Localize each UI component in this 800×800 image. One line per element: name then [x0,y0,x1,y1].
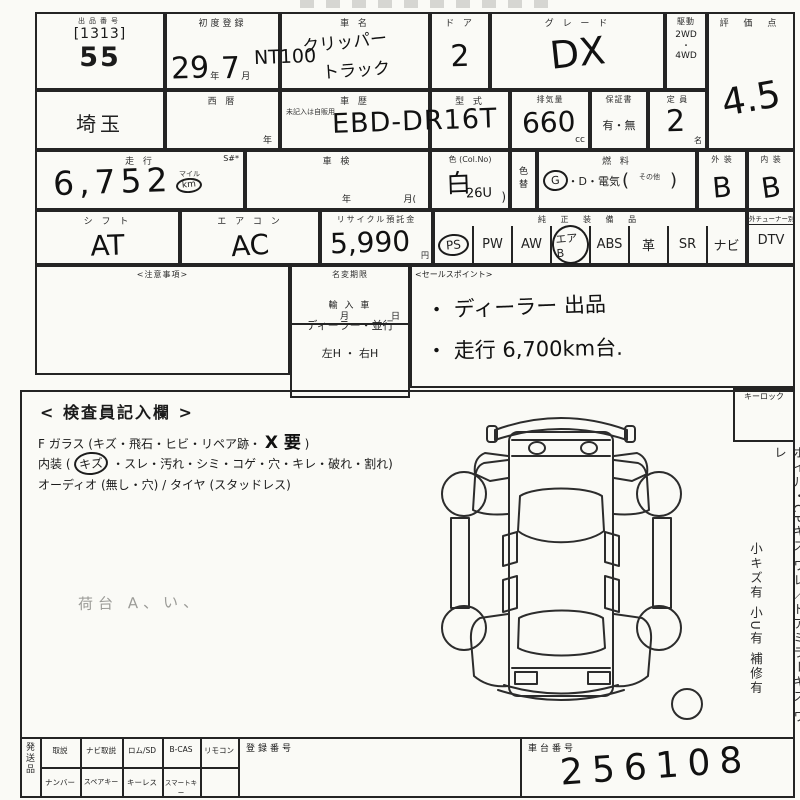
name-change-month: 月 [340,309,349,322]
first-reg-month-unit: 月 [241,69,250,82]
cell-spare-key: スペアキー [80,777,122,787]
fglass-close-paren: ) [305,437,310,451]
first-reg-year-unit: 年 [210,69,219,82]
lot-number-cell: 出品番号 [1313] 55 [35,12,165,90]
side-note-wheel-damage: ホイル・CPキズ ワレ／ドアミラーキズ ワレ [770,446,800,736]
exterior-grade-cell: 外 装 B [697,150,747,210]
equipment-item-pw-label: PW [482,237,503,252]
capacity-value: 2 [665,104,685,140]
equipment-item-navi: ナビ [706,226,745,263]
model-code-cell: 型 式 EBD-DR16T [430,90,510,150]
inspector-line-fglass: F ガラス (キズ・飛石・ヒビ・リペア跡・ X 要 ) [38,428,309,453]
name-change-day: 日 [391,309,400,322]
key-lock-box: キーロック [733,388,795,442]
bottom-div-6 [238,737,240,798]
fuel-cell: 燃 料 G ・D・電気 ( その他 ) [537,150,697,210]
car-name-line2: トラック [321,54,391,84]
equipment-item-ps: PS [435,226,472,263]
displacement-unit: cc [575,135,585,145]
interior-grade-cell: 内 装 B [747,150,795,210]
color-cell: 色 (Col.No) 白 26U ) [430,150,510,210]
drive-cell: 駆動 2WD ・ 4WD [665,12,707,90]
displacement-cell: 排気量 660 cc [510,90,590,150]
score-label: 評 価 点 [709,14,793,29]
color-change-cell: 色 替 [510,150,537,210]
equipment-items: PS PW AW エアB ABS 革 SR ナビ [435,226,745,263]
cell-number-plate: ナンバー [40,777,80,788]
inspector-hand-note: 荷台 A、い、 [78,591,203,614]
prefecture-value: 埼玉 [37,108,163,137]
sales-point-2: ・ 走行 6,700km台. [426,329,793,365]
shift-cell: シ フ ト AT [35,210,180,265]
cell-bcas: B-CAS [162,745,200,754]
interior-value: B [747,168,795,207]
equipment-item-airbag: エアB [550,226,589,263]
shift-value: AT [36,227,178,265]
inspector-line-interior: 内装 ( キズ ・スレ・汚れ・シミ・コゲ・穴・キレ・破れ・割れ) [38,452,393,475]
equipment-item-sr-label: SR [679,237,696,252]
grade-cell: グ レ ー ド DX [490,12,665,90]
capacity-unit: 名 [694,135,702,146]
mileage-unit-km: km [176,176,203,193]
first-registration-label: 初度登録 [167,14,278,29]
fuel-sonota: その他 [639,172,660,182]
western-year-unit: 年 [263,133,272,146]
score-cell: 評 価 点 4.5 [707,12,795,150]
color-change-char1: 色 [512,164,535,177]
interior-line-pre: 内装 ( [38,457,71,471]
recycle-fee-label: リサイクル預託金 [322,212,431,225]
dtv-note: 外チューナー別 [749,212,793,225]
score-value: 4.5 [706,70,796,127]
color-change-char2: 替 [512,177,535,190]
shaken-label: 車 検 [247,152,428,167]
shift-label: シ フ ト [37,212,178,227]
equipment-item-sr: SR [667,226,706,263]
bottom-mid-divider [40,767,238,769]
caution-box: <注意事項> [35,265,290,375]
car-history-label: 車 歴 [282,92,428,107]
fuel-gasoline: G [542,169,568,192]
name-change-box: 名変期限 月 日 輸 入 車 ディーラー・並行 左H ・ 右H [290,265,410,398]
drive-4wd: 4WD [667,51,705,61]
capacity-cell: 定 員 2 名 [648,90,707,150]
drive-dot: ・ [667,40,705,51]
warranty-options: 有・無 [592,117,646,133]
lot-number: 55 [37,42,163,73]
displacement-value: 660 [521,105,576,140]
dtv-label: DTV [749,233,793,248]
bottom-div-7 [520,737,522,798]
aircon-value: AC [181,224,319,266]
model-code-value: EBD-DR16T [332,103,498,140]
recycle-fee-unit: 円 [421,250,429,261]
grade-value: DX [490,22,665,84]
handle-options: 左H ・ 右H [292,345,408,361]
shaken-month-unit: 月( [403,192,416,205]
inspector-line-audio-tire: オーディオ (無し・穴) / タイヤ (スタッドレス) [38,476,291,493]
color-paren: ) [501,190,506,204]
equipment-item-aw-label: AW [521,237,542,252]
name-change-label: 名変期限 [292,267,408,280]
cropped-print-artifact [300,0,560,8]
doors-cell: ド ア 2 [430,12,490,90]
equipment-item-navi-label: ナビ [713,235,739,254]
cell-rom-sd: ロム/SD [122,745,162,756]
fuel-other-options: ・D・電気 [568,173,620,189]
first-reg-month: 7 [221,51,241,87]
equipment-item-abs-label: ABS [597,237,623,252]
dtv-cell: 外チューナー別 DTV [747,210,795,265]
shipping-items-label: 発送品 [23,742,36,796]
auction-sheet: 出品番号 [1313] 55 初度登録 29 年 7 月 車 名 NT100 ク… [0,0,800,800]
equipment-cell: 純 正 装 備 品 PS PW AW エアB ABS 革 SR ナビ [433,210,747,265]
doors-value: 2 [431,38,488,75]
equipment-item-leather-label: 革 [642,235,655,254]
western-year-label: 西 暦 [167,92,278,107]
doors-label: ド ア [432,14,488,29]
car-name-cell: 車 名 NT100 クリッパー トラック [280,12,430,90]
fglass-options: F ガラス (キズ・飛石・ヒビ・リペア跡・ [38,437,261,451]
sales-point-box: <セールスポイント> ・ ディーラー 出品 ・ 走行 6,700km台. [410,265,795,388]
vehicle-top-view-diagram [440,393,740,731]
name-change-divider [292,323,408,325]
equipment-label: 純 正 装 備 品 [435,212,745,225]
inspector-area-top-border [20,390,795,392]
drive-2wd: 2WD [667,30,705,40]
mileage-cell: 走 行 S#* 6,752 マイル km [35,150,245,210]
recycle-fee-value: 5,990 [329,225,410,261]
drive-label: 駆動 [667,14,705,27]
sales-point-label: <セールスポイント> [412,267,793,280]
shaken-year-unit: 年 [342,192,351,205]
fuel-paren-open: ( [622,170,629,191]
warranty-label: 保証書 [592,92,646,105]
exterior-label: 外 装 [699,152,745,165]
side-note-small-scratch: 小キズ有 小U有 補修有 [746,542,765,736]
prefecture-cell: 埼玉 [35,90,165,150]
sheet-left-border [20,390,22,737]
cell-navi-torisetsu: ナビ取説 [80,745,122,756]
interior-circled-kizu: キズ [73,451,109,477]
shaken-cell: 車 検 年 月( [245,150,430,210]
interior-line-post: ・スレ・汚れ・シミ・コゲ・穴・キレ・破れ・割れ) [112,457,393,471]
equipment-item-leather: 革 [628,226,667,263]
cell-keyless: キーレス [122,777,162,788]
western-year-cell: 西 暦 年 [165,90,280,150]
mileage-unit-mile: マイル [179,171,200,178]
cell-remote: リモコン [200,745,238,756]
sales-point-1: ・ ディーラー 出品 [426,282,794,325]
aircon-cell: エ ア コ ン AC [180,210,320,265]
exterior-value: B [698,169,747,206]
recycle-fee-cell: リサイクル預託金 5,990 円 [320,210,433,265]
lot-code: [1313] [37,26,163,42]
equipment-item-abs: ABS [589,226,628,263]
key-lock-label: キーロック [735,390,793,402]
equipment-item-aw: AW [511,226,550,263]
fuel-paren-close: ) [670,170,677,191]
equipment-item-pw: PW [472,226,511,263]
color-code: 26U [466,186,493,202]
mileage-value: 6,752 [52,160,173,203]
cell-smart-key: スマートキー [162,777,200,797]
equipment-item-ps-label: PS [437,232,470,257]
mileage-s-label: S#* [223,154,239,163]
first-reg-year: 29 [170,50,209,86]
fglass-handwritten-mark: X 要 [265,433,301,453]
registration-number-label: 登録番号 [246,741,294,754]
inspector-section-title: < 検査員記入欄 > [40,399,194,423]
displacement-label: 排気量 [512,92,588,105]
caution-label: <注意事項> [37,267,288,280]
lot-header: 出品番号 [37,14,163,26]
interior-label: 内 装 [749,152,793,165]
warranty-cell: 保証書 有・無 [590,90,648,150]
cell-torisetsu: 取説 [40,745,80,756]
fuel-label: 燃 料 [539,152,695,167]
equipment-item-airbag-label: エアB [550,223,590,265]
